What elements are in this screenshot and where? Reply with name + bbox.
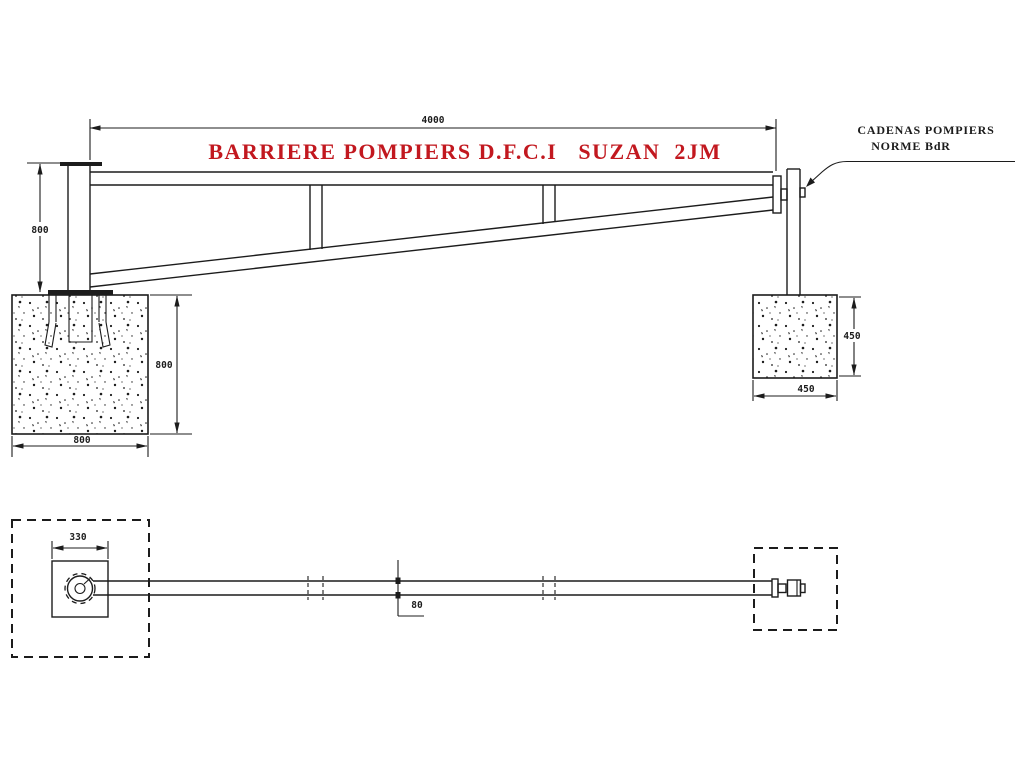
chain-annotation: CADENAS POMPIERS NORME BdR <box>806 123 1015 187</box>
dim-baseplate-width-label: 330 <box>69 532 86 543</box>
dim-tick-bottom <box>396 592 401 599</box>
plan-pivot-baseplate <box>52 561 108 617</box>
left-pivot-post <box>48 162 113 295</box>
post-top-cap <box>60 162 102 166</box>
dim-arm-tube-width: 80 <box>396 560 425 616</box>
latch-pin <box>781 189 787 200</box>
drawing-title: BARRIERE POMPIERS D.F.C.I SUZAN 2JM <box>208 139 721 164</box>
dim-right-foundation-width: 450 <box>753 380 837 401</box>
dim-tick-top <box>396 578 401 585</box>
leader-line <box>811 162 1015 183</box>
annotation-line2: NORME BdR <box>871 139 951 153</box>
dim-right-foundation-height-label: 450 <box>843 331 860 342</box>
technical-drawing: 4000 800 800 800 450 <box>0 0 1024 768</box>
arm-joint-marks <box>308 576 555 600</box>
dim-right-foundation-width-label: 450 <box>797 384 814 395</box>
right-foundation <box>753 295 837 378</box>
dim-post-height: 800 <box>27 163 62 292</box>
dim-right-foundation-height: 450 <box>839 297 865 376</box>
dim-baseplate-width: 330 <box>52 532 108 559</box>
dim-left-foundation-height-label: 800 <box>155 360 172 371</box>
plan-catch-tab <box>801 584 806 593</box>
dim-left-foundation-height: 800 <box>150 295 192 434</box>
plan-connector-stub <box>778 584 786 593</box>
arm-strut-1 <box>310 185 322 250</box>
elevation-view: 4000 800 800 800 450 <box>12 115 865 457</box>
left-foundation-concrete <box>12 295 148 434</box>
dim-arm-tube-width-label: 80 <box>411 600 423 611</box>
baseplate <box>52 561 108 617</box>
left-foundation <box>12 295 148 434</box>
chain-catch <box>800 188 805 197</box>
plan-right-foundation-outline <box>754 548 837 630</box>
drawing-canvas: 4000 800 800 800 450 <box>0 0 1024 768</box>
dim-left-foundation-width-label: 800 <box>73 435 90 446</box>
arm-bottom-chord-upper <box>90 197 773 274</box>
pivot-axis <box>75 584 85 594</box>
arm-bottom-chord-lower <box>90 210 773 287</box>
arm-strut-2 <box>543 185 555 224</box>
right-foundation-concrete <box>753 295 837 378</box>
plan-catch-body <box>788 580 801 596</box>
plan-barrier-arm <box>93 576 805 600</box>
annotation-line1: CADENAS POMPIERS <box>857 123 994 137</box>
dim-post-height-label: 800 <box>31 225 48 236</box>
pivot-bolt-circle-dashed <box>65 574 95 604</box>
dim-left-foundation-width: 800 <box>12 435 148 457</box>
plan-arm-end-cap <box>772 579 778 597</box>
barrier-arm-truss <box>90 172 787 287</box>
pivot-key-mark <box>84 579 90 585</box>
arm-end-plate <box>773 176 781 213</box>
dim-overall-length-label: 4000 <box>422 115 445 126</box>
plan-view: 330 80 <box>12 520 837 657</box>
